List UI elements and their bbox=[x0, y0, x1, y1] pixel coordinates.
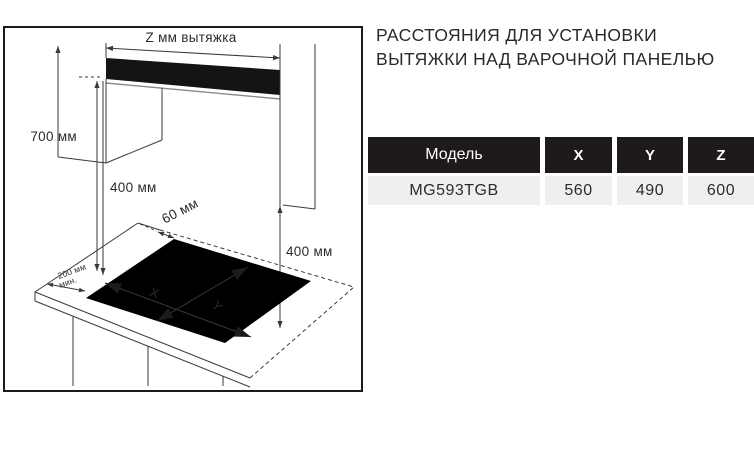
height-400-right-label: 400 мм bbox=[286, 244, 333, 259]
arrowhead-up-icon bbox=[277, 206, 282, 213]
arrowhead-left-icon bbox=[106, 45, 113, 51]
dimension-tail-line bbox=[283, 205, 315, 209]
table-header-z: Z bbox=[688, 137, 754, 173]
hood-front-panel bbox=[106, 58, 280, 95]
gap-60-label: 60 мм bbox=[159, 195, 200, 226]
arrowhead-down-icon bbox=[277, 321, 282, 328]
dimension-hood-width: Z мм вытяжка bbox=[106, 30, 280, 61]
arrowhead-right-icon bbox=[273, 55, 280, 61]
table-cell-z: 600 bbox=[688, 176, 754, 205]
dimensions-table: Модель X Y Z MG593TGB 560 490 600 bbox=[368, 137, 754, 205]
table-header-model: Модель bbox=[368, 137, 540, 173]
table-header-x: X bbox=[545, 137, 612, 173]
dimension-400-left: 400 мм bbox=[79, 77, 157, 275]
arrowhead-up-icon bbox=[55, 46, 60, 53]
arrowhead-down-icon bbox=[94, 264, 99, 271]
table-cell-model: MG593TGB bbox=[368, 176, 540, 205]
dimension-200: 200 мм мин. bbox=[47, 261, 91, 293]
table-cell-y: 490 bbox=[617, 176, 683, 205]
dimension-400-right: 400 мм bbox=[277, 205, 332, 328]
height-400-left-label: 400 мм bbox=[110, 180, 157, 195]
page-title-line2: ВЫТЯЖКИ НАД ВАРОЧНОЙ ПАНЕЛЬЮ bbox=[376, 48, 715, 72]
dimension-tail-line bbox=[58, 157, 106, 163]
page-title: РАССТОЯНИЯ ДЛЯ УСТАНОВКИ ВЫТЯЖКИ НАД ВАР… bbox=[376, 24, 715, 71]
height-700-label: 700 мм bbox=[30, 129, 77, 144]
arrowhead-down-icon bbox=[100, 268, 105, 275]
hood-underside-bottom-edge bbox=[106, 140, 162, 163]
dimension-line bbox=[106, 48, 280, 58]
hood-width-label: Z мм вытяжка bbox=[145, 30, 236, 45]
installation-diagram: Z мм вытяжка 700 мм 400 мм 400 мм bbox=[3, 26, 363, 392]
table-cell-x: 560 bbox=[545, 176, 612, 205]
page: Z мм вытяжка 700 мм 400 мм 400 мм bbox=[0, 0, 754, 452]
page-title-line1: РАССТОЯНИЯ ДЛЯ УСТАНОВКИ bbox=[376, 24, 715, 48]
hob-cutout bbox=[86, 239, 311, 343]
arrowhead-up-icon bbox=[94, 81, 99, 88]
table-header-y: Y bbox=[617, 137, 683, 173]
dimension-dashed-line bbox=[140, 224, 157, 231]
dimension-700: 700 мм bbox=[30, 46, 106, 163]
